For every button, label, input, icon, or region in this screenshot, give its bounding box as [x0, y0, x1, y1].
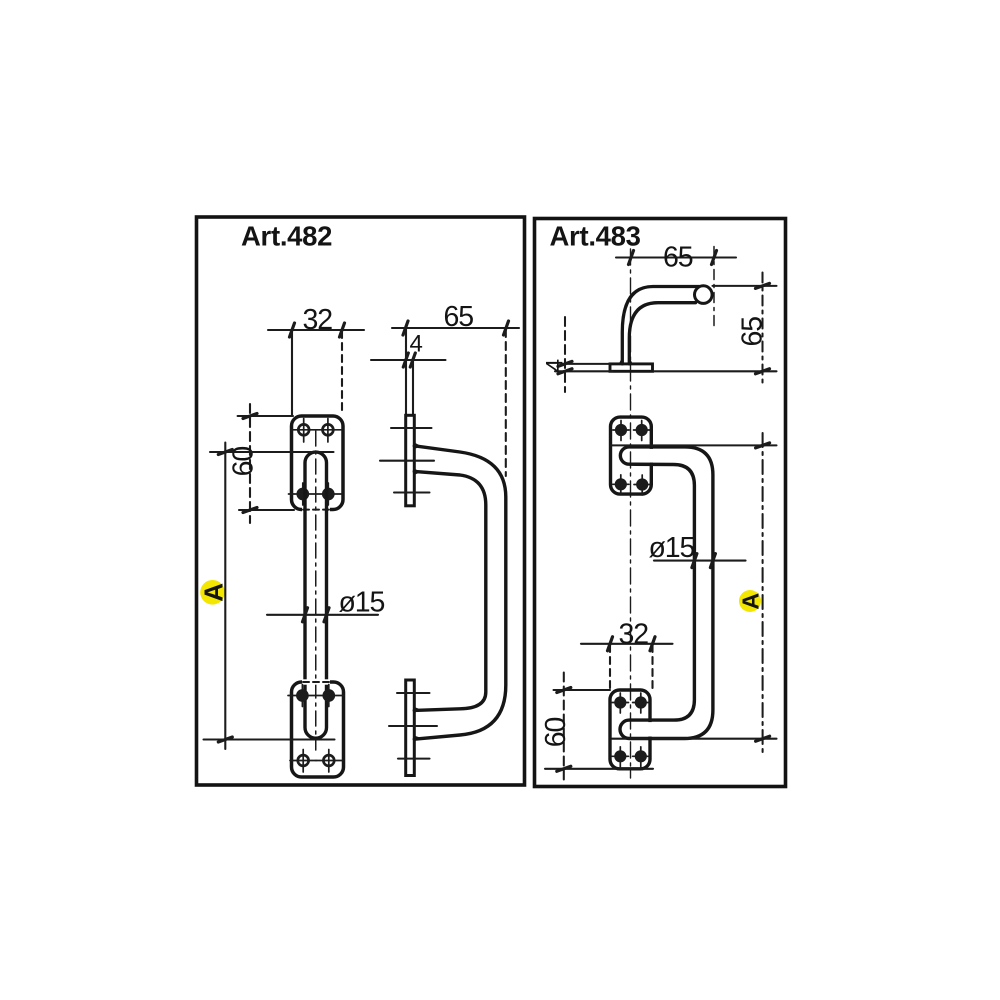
svg-text:65: 65	[663, 241, 693, 273]
svg-text:A: A	[738, 593, 764, 610]
svg-text:4: 4	[410, 331, 423, 358]
svg-text:65: 65	[444, 301, 474, 333]
svg-text:A: A	[199, 583, 229, 602]
svg-text:ø15: ø15	[649, 532, 695, 564]
svg-text:Art.483: Art.483	[550, 221, 641, 252]
svg-text:32: 32	[619, 618, 649, 650]
svg-text:ø15: ø15	[339, 587, 385, 619]
svg-text:60: 60	[540, 718, 572, 748]
svg-text:4: 4	[542, 359, 569, 372]
svg-text:65: 65	[737, 317, 769, 347]
svg-text:Art.482: Art.482	[241, 221, 332, 252]
svg-text:32: 32	[303, 304, 333, 336]
